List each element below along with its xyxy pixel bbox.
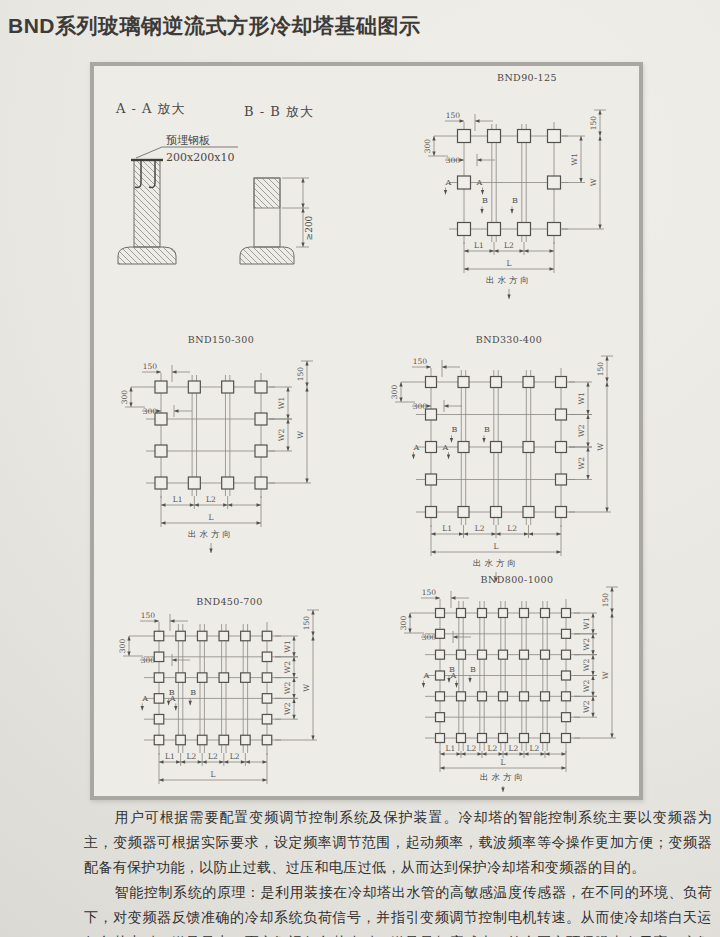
svg-text:L1: L1 <box>446 744 456 753</box>
svg-text:W: W <box>589 178 598 186</box>
section-marker-a: A <box>141 694 148 703</box>
svg-text:W: W <box>296 431 305 439</box>
svg-text:W1: W1 <box>570 153 579 165</box>
svg-text:L1: L1 <box>474 241 484 250</box>
svg-text:W2: W2 <box>582 700 591 713</box>
plan-diagram-bnd330-400: BND330-400150300300150W1W2W2WL1L2L2L出水方向… <box>394 332 624 584</box>
svg-text:W: W <box>302 684 311 692</box>
svg-text:150: 150 <box>296 367 305 382</box>
svg-text:L1: L1 <box>173 495 183 504</box>
svg-text:W1: W1 <box>283 640 292 652</box>
svg-text:W2: W2 <box>582 659 591 672</box>
svg-text:150: 150 <box>601 593 610 608</box>
section-marker-a: A <box>476 178 483 187</box>
svg-text:300: 300 <box>423 139 432 154</box>
svg-text:L2: L2 <box>504 241 514 250</box>
svg-text:W1: W1 <box>577 392 586 404</box>
section-marker-b: B <box>169 688 175 697</box>
min-height-label: ≥200 <box>304 215 314 240</box>
svg-text:W2: W2 <box>283 702 292 715</box>
svg-text:W1: W1 <box>582 617 591 629</box>
svg-text:W2: W2 <box>283 682 292 695</box>
svg-text:300: 300 <box>446 156 461 165</box>
diagram-title: BND330-400 <box>476 334 542 345</box>
aa-pedestal <box>118 147 238 264</box>
page-title: BND系列玻璃钢逆流式方形冷却塔基础图示 <box>8 12 421 40</box>
svg-text:W: W <box>596 443 605 451</box>
svg-text:L: L <box>209 513 214 522</box>
svg-text:L2: L2 <box>530 744 540 753</box>
svg-text:300: 300 <box>422 633 437 642</box>
svg-text:150: 150 <box>143 362 158 371</box>
svg-text:150: 150 <box>413 357 428 366</box>
svg-text:L2: L2 <box>475 524 485 533</box>
plan-diagram-bnd150-300: BND150-300150300300150W1W2WL1L2L出水方向 <box>110 332 332 560</box>
svg-text:W2: W2 <box>582 679 591 692</box>
section-marker-b: B <box>484 425 490 434</box>
foundation-pads <box>155 381 267 489</box>
diagram-title: BND800-1000 <box>481 574 554 585</box>
svg-text:W2: W2 <box>577 457 586 470</box>
drawing-panel: A - A 放大 B - B 放大 预埋钢板 200x200x10 <box>90 62 643 800</box>
svg-text:L2: L2 <box>206 495 216 504</box>
svg-text:L1: L1 <box>165 752 175 761</box>
section-marker-a: A <box>413 443 420 452</box>
svg-text:300: 300 <box>118 639 127 654</box>
plan-diagram-bnd800-1000: BND800-1000150300300150W1W2W2W2W2WL1L2L2… <box>404 572 630 794</box>
outflow-direction-label: 出水方向 <box>486 275 532 285</box>
svg-text:300: 300 <box>141 656 156 665</box>
svg-text:W2: W2 <box>582 638 591 651</box>
svg-text:L: L <box>507 259 512 268</box>
svg-text:300: 300 <box>399 616 408 631</box>
section-marker-a: A <box>423 671 430 680</box>
svg-text:W2: W2 <box>283 661 292 674</box>
svg-text:L2: L2 <box>509 744 519 753</box>
outflow-direction-label: 出水方向 <box>188 529 234 539</box>
svg-text:L2: L2 <box>230 752 240 761</box>
description-text: 用户可根据需要配置变频调节控制系统及保护装置。冷却塔的智能控制系统主要以变频器为… <box>84 805 712 937</box>
svg-text:150: 150 <box>141 611 156 620</box>
diagram-title: BND90-125 <box>497 72 557 83</box>
section-marker-b: B <box>482 196 488 205</box>
outflow-direction-label: 出水方向 <box>480 772 526 782</box>
plate-label: 预埋钢板 <box>166 134 210 147</box>
bb-pedestal <box>240 178 309 264</box>
svg-text:150: 150 <box>446 111 461 120</box>
outflow-direction-label: 出水方向 <box>473 558 519 568</box>
svg-text:W2: W2 <box>577 424 586 437</box>
section-marker-b: B <box>512 196 518 205</box>
paragraph-intelligent-control: 智能控制系统的原理：是利用装接在冷却塔出水管的高敏感温度传感器，在不同的环境、负… <box>84 880 712 937</box>
plan-diagram-bnd90-125: BND90-125150300300150W1WL1L2L出水方向AABB <box>422 70 632 310</box>
svg-text:L: L <box>501 758 506 767</box>
page: { "page": { "title": "BND系列玻璃钢逆流式方形冷却塔基础… <box>0 0 720 937</box>
svg-text:L2: L2 <box>467 744 477 753</box>
svg-text:L: L <box>494 542 499 551</box>
svg-text:300: 300 <box>120 390 129 405</box>
section-detail-drawing: 预埋钢板 200x200x10 ≥200 <box>104 134 344 306</box>
section-marker-b: B <box>470 665 476 674</box>
svg-text:L2: L2 <box>208 752 218 761</box>
svg-text:300: 300 <box>390 385 399 400</box>
svg-text:L2: L2 <box>488 744 498 753</box>
paragraph-frequency-control: 用户可根据需要配置变频调节控制系统及保护装置。冷却塔的智能控制系统主要以变频器为… <box>84 805 712 880</box>
section-marker-b: B <box>190 688 196 697</box>
diagram-title: BND450-700 <box>196 596 262 607</box>
diagram-title: BND150-300 <box>188 334 254 345</box>
detail-label-bb: B - B 放大 <box>244 103 314 121</box>
svg-text:W1: W1 <box>277 397 286 409</box>
section-marker-a: A <box>442 443 449 452</box>
plate-size-label: 200x200x10 <box>166 151 234 164</box>
svg-text:150: 150 <box>302 616 311 631</box>
svg-text:150: 150 <box>589 116 598 131</box>
section-marker-b: B <box>449 665 455 674</box>
plan-diagram-bnd450-700: BND450-700150300300150W1W2W2W2WL1L2L2L2L… <box>122 594 337 794</box>
svg-text:150: 150 <box>422 588 437 597</box>
svg-text:W2: W2 <box>277 429 286 442</box>
svg-text:L1: L1 <box>442 524 452 533</box>
section-marker-a: A <box>445 178 452 187</box>
svg-text:150: 150 <box>596 362 605 377</box>
detail-label-aa: A - A 放大 <box>116 100 186 118</box>
svg-text:L2: L2 <box>187 752 197 761</box>
section-marker-b: B <box>452 425 458 434</box>
svg-text:L: L <box>211 770 216 779</box>
svg-text:W: W <box>601 671 610 679</box>
svg-text:L2: L2 <box>507 524 517 533</box>
